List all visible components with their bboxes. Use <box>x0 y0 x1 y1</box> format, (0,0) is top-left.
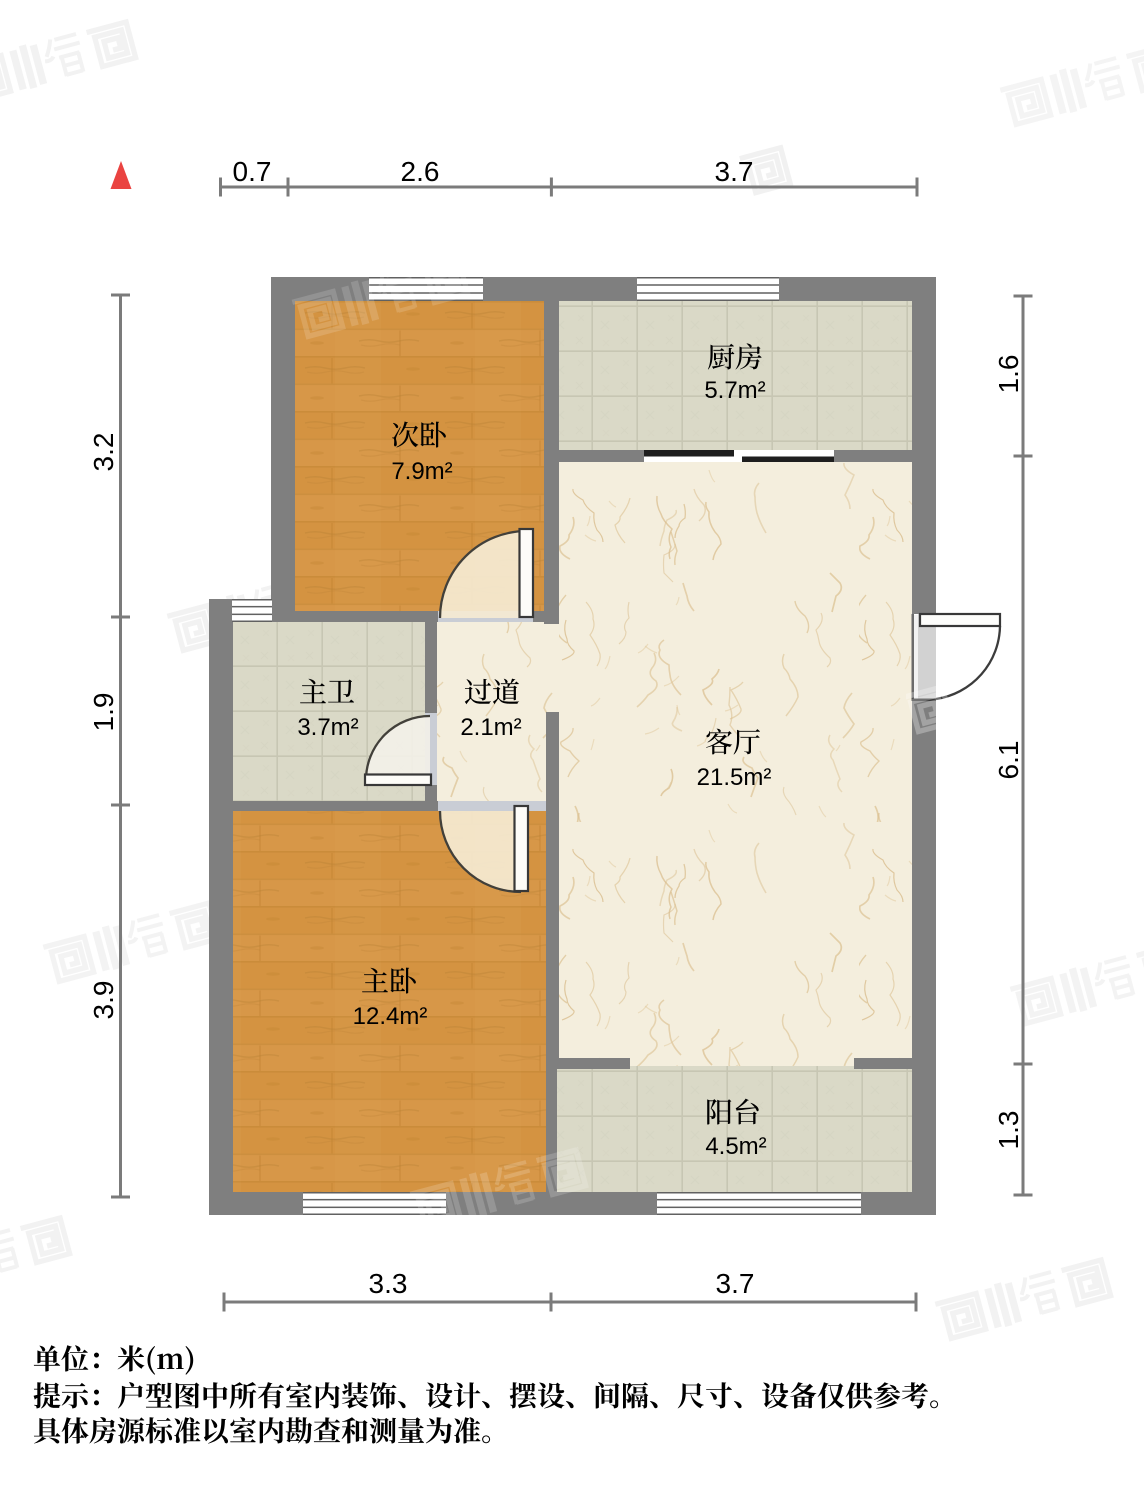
svg-text:1.6: 1.6 <box>993 355 1024 394</box>
svg-text:3.2: 3.2 <box>88 433 119 472</box>
svg-text:1.9: 1.9 <box>88 693 119 732</box>
svg-text:21.5m²: 21.5m² <box>697 764 772 791</box>
svg-text:1.3: 1.3 <box>993 1111 1024 1150</box>
svg-text:3.7: 3.7 <box>716 1268 755 1299</box>
svg-text:2.6: 2.6 <box>401 156 440 187</box>
svg-text:0.7: 0.7 <box>233 156 272 187</box>
svg-text:5.7m²: 5.7m² <box>704 377 765 404</box>
svg-text:3.7: 3.7 <box>715 156 754 187</box>
svg-text:7.9m²: 7.9m² <box>391 458 452 485</box>
svg-text:3.3: 3.3 <box>369 1268 408 1299</box>
svg-text:3.7m²: 3.7m² <box>297 714 358 741</box>
svg-text:3.9: 3.9 <box>88 981 119 1020</box>
svg-text:4.5m²: 4.5m² <box>705 1133 766 1160</box>
svg-text:6.1: 6.1 <box>993 741 1024 780</box>
svg-text:2.1m²: 2.1m² <box>460 714 521 741</box>
svg-text:12.4m²: 12.4m² <box>353 1003 428 1030</box>
